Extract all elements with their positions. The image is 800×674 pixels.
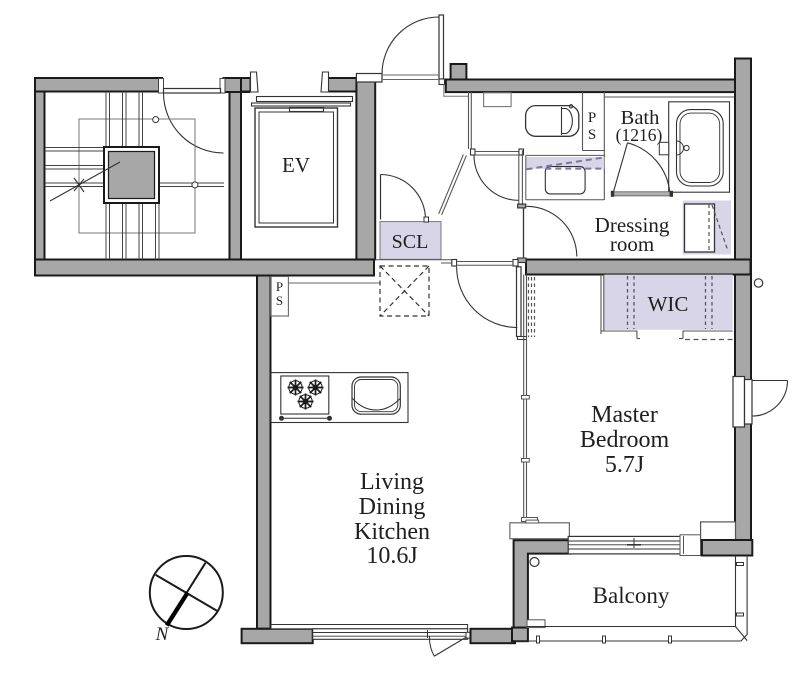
svg-text:Living: Living xyxy=(360,469,424,495)
svg-text:P: P xyxy=(276,279,283,294)
svg-text:5.7J: 5.7J xyxy=(605,452,644,478)
svg-text:SCL: SCL xyxy=(392,231,429,253)
svg-text:room: room xyxy=(610,232,654,256)
svg-text:S: S xyxy=(588,127,596,143)
svg-text:EV: EV xyxy=(282,153,310,177)
svg-text:Bedroom: Bedroom xyxy=(580,427,670,453)
svg-text:Kitchen: Kitchen xyxy=(354,519,430,545)
svg-text:WIC: WIC xyxy=(648,292,689,316)
svg-text:Master: Master xyxy=(591,402,658,428)
svg-text:(1216): (1216) xyxy=(616,125,663,145)
svg-text:10.6J: 10.6J xyxy=(366,543,417,569)
svg-text:Dining: Dining xyxy=(359,494,426,520)
svg-text:P: P xyxy=(588,110,596,126)
svg-text:S: S xyxy=(276,293,283,308)
svg-text:N: N xyxy=(155,624,170,645)
svg-text:Balcony: Balcony xyxy=(593,583,670,608)
